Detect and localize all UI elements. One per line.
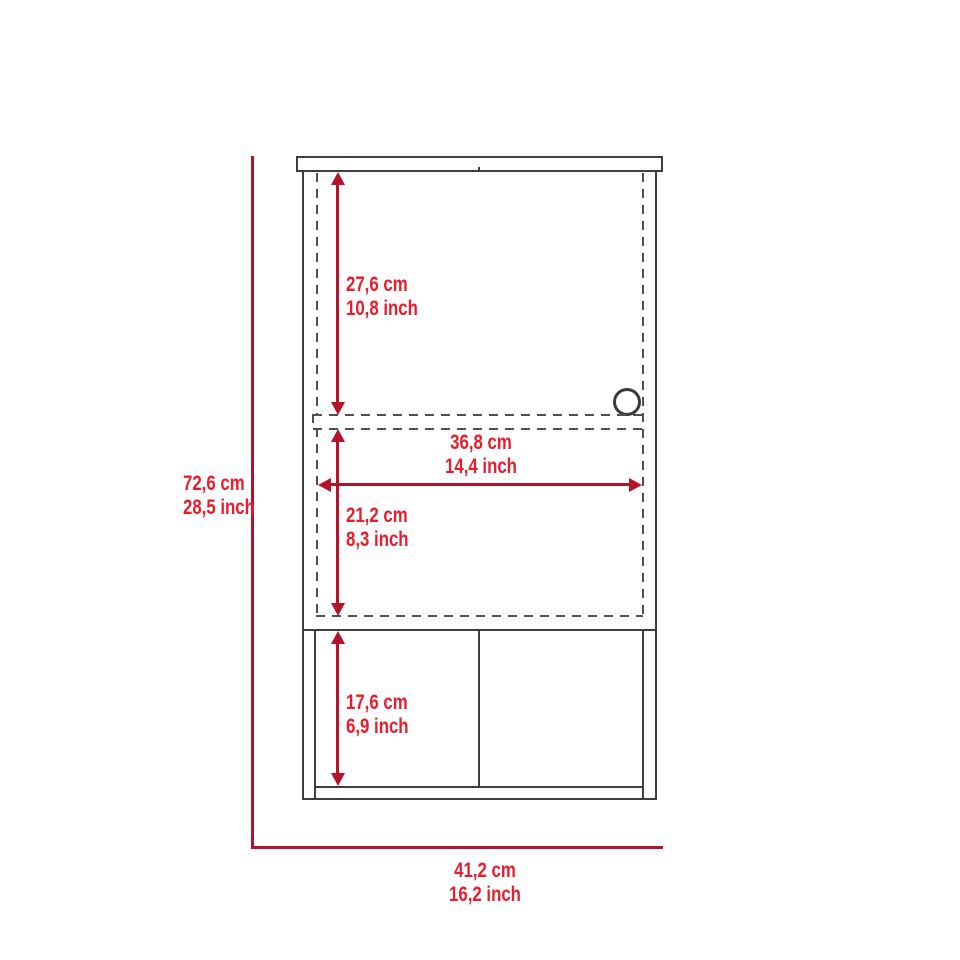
dim-arrow-interior-width bbox=[318, 478, 642, 492]
value-cm: 27,6 cm bbox=[346, 273, 418, 297]
value-inch: 8,3 inch bbox=[346, 528, 409, 552]
interior-dashed-top bbox=[313, 428, 643, 430]
label-lower-section-height: 17,6 cm 6,9 inch bbox=[346, 691, 409, 739]
value-cm: 72,6 cm bbox=[183, 472, 255, 496]
label-overall-width: 41,2 cm 16,2 inch bbox=[405, 859, 565, 907]
label-interior-width: 36,8 cm 14,4 inch bbox=[401, 431, 561, 479]
cabinet-right-side bbox=[655, 171, 657, 800]
value-cm: 36,8 cm bbox=[401, 431, 561, 455]
value-inch: 14,4 inch bbox=[401, 455, 561, 479]
lower-inner-left-wall bbox=[314, 630, 316, 798]
value-inch: 16,2 inch bbox=[405, 883, 565, 907]
dim-arrow-lower-section-height bbox=[331, 631, 345, 786]
dim-arrow-upper-section-height bbox=[331, 172, 345, 415]
overall-width-extent-line bbox=[251, 846, 663, 849]
cabinet-left-side bbox=[302, 171, 304, 800]
door-center-tick bbox=[478, 167, 480, 172]
door-knob bbox=[613, 388, 641, 416]
cabinet-bottom-shelf-line bbox=[314, 786, 644, 788]
cabinet-bottom-edge bbox=[302, 798, 657, 800]
arrow-down-icon bbox=[331, 603, 345, 616]
arrow-right-icon bbox=[629, 478, 642, 492]
label-overall-height: 72,6 cm 28,5 inch bbox=[183, 472, 255, 520]
label-upper-section-height: 27,6 cm 10,8 inch bbox=[346, 273, 418, 321]
label-middle-section-height: 21,2 cm 8,3 inch bbox=[346, 504, 409, 552]
arrow-down-icon bbox=[331, 773, 345, 786]
value-inch: 10,8 inch bbox=[346, 297, 418, 321]
door-dashed-right bbox=[642, 173, 644, 616]
value-cm: 21,2 cm bbox=[346, 504, 409, 528]
interior-dashed-bottom bbox=[316, 615, 643, 617]
value-cm: 17,6 cm bbox=[346, 691, 409, 715]
value-inch: 6,9 inch bbox=[346, 715, 409, 739]
lower-inner-right-wall bbox=[642, 630, 644, 798]
dim-arrow-middle-section-height bbox=[331, 429, 345, 616]
door-dashed-bottom bbox=[313, 414, 643, 416]
dimension-diagram: 27,6 cm 10,8 inch 36,8 cm 14,4 inch 21,2… bbox=[0, 0, 960, 960]
value-cm: 41,2 cm bbox=[405, 859, 565, 883]
arrow-down-icon bbox=[331, 402, 345, 415]
door-dashed-left bbox=[316, 173, 318, 415]
value-inch: 28,5 inch bbox=[183, 496, 255, 520]
interior-dashed-left bbox=[316, 428, 318, 616]
lower-section-divider bbox=[478, 630, 480, 787]
